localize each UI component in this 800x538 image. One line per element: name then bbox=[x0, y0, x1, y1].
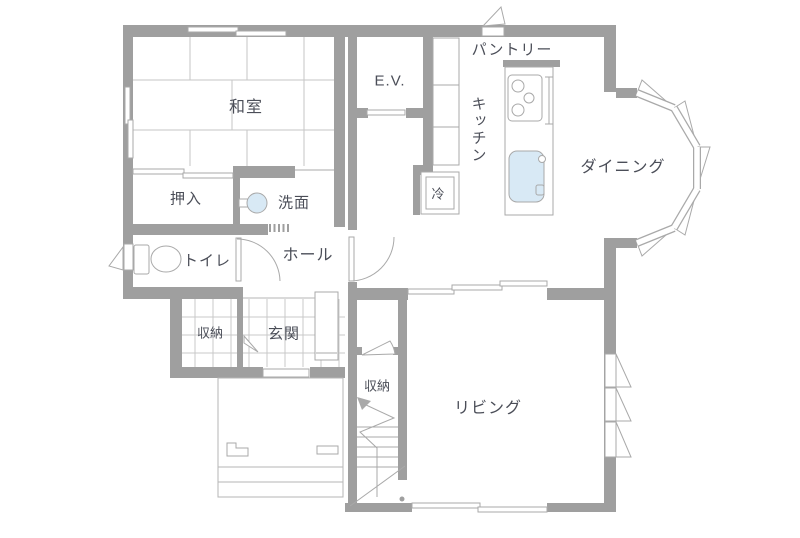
kitchen-counter bbox=[505, 67, 553, 215]
room-label-fridge: 冷 bbox=[431, 184, 444, 203]
stair-storage-door-icon bbox=[362, 341, 395, 355]
toilet-door-icon bbox=[236, 238, 280, 281]
toilet-icon bbox=[134, 245, 181, 274]
room-label-washitsu: 和室 bbox=[229, 93, 263, 117]
stove-icon bbox=[508, 75, 542, 121]
room-label-elevator: E.V. bbox=[375, 73, 406, 90]
room-label-stair-storage: 収納 bbox=[364, 376, 390, 395]
dining-living-sliding-door-icon bbox=[408, 281, 547, 294]
porch-stone-icon bbox=[317, 446, 338, 454]
elevator-door-icon bbox=[367, 110, 405, 115]
toilet-casement-window-icon bbox=[109, 244, 133, 270]
hall-ldk-door-icon bbox=[349, 237, 394, 281]
floor-plan: 和室 押入 洗面 トイレ ホール 収納 玄関 収納 E.V. パントリー キッチ… bbox=[0, 0, 800, 538]
stairs-icon bbox=[350, 397, 405, 506]
accordion-door-icon bbox=[269, 224, 289, 232]
oshiire-fusuma-icon bbox=[133, 169, 233, 178]
room-label-living: リビング bbox=[454, 394, 522, 418]
room-label-pantry: パントリー bbox=[472, 39, 553, 60]
shoe-cabinet bbox=[315, 292, 338, 360]
kitchen-cabinet bbox=[433, 38, 459, 165]
sink-icon bbox=[239, 193, 267, 213]
room-label-dining: ダイニング bbox=[580, 153, 665, 177]
genkan-door-mark-icon bbox=[244, 336, 258, 352]
room-label-kitchen: キッチン bbox=[468, 96, 489, 164]
room-label-toilet: トイレ bbox=[183, 250, 231, 271]
kitchen-sink-icon bbox=[509, 151, 546, 202]
room-label-genkan: 玄関 bbox=[268, 323, 300, 344]
living-bottom-window-icon bbox=[412, 503, 547, 512]
room-label-senmen: 洗面 bbox=[278, 192, 310, 213]
room-label-oshiire: 押入 bbox=[170, 188, 202, 209]
room-label-genkan-storage: 収納 bbox=[197, 323, 223, 342]
entrance-porch bbox=[218, 378, 343, 497]
living-awning-windows-icon bbox=[605, 354, 631, 457]
pantry-casement-window-icon bbox=[482, 7, 505, 36]
room-label-hall: ホール bbox=[282, 241, 333, 265]
